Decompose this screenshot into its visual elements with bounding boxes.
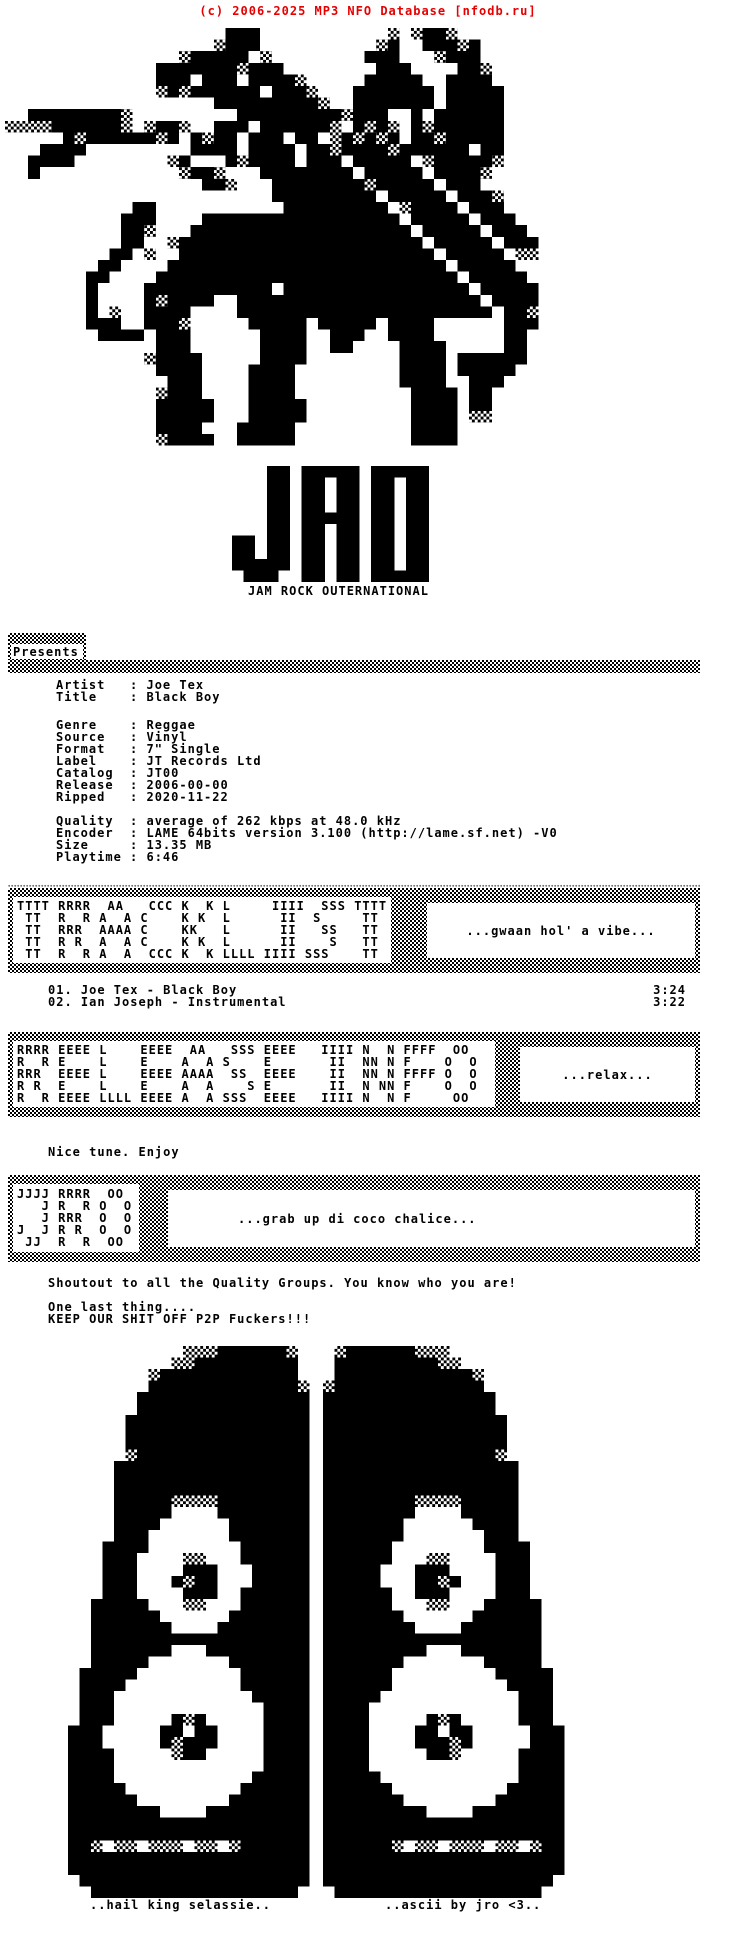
tracklist-ascii: TTTT RRRR AA CCC K K L IIII SSS TTTT TT …	[17, 900, 387, 960]
jro-ascii: JJJJ RRRR OO J R R O O J RRR O O J J R R…	[17, 1188, 132, 1248]
jro-banner: JJJJ RRRR OO J R R O O J RRR O O J J R R…	[8, 1175, 700, 1262]
shoutout-block: Shoutout to all the Quality Groups. You …	[48, 1277, 517, 1325]
jro-note: ...grab up di coco chalice...	[238, 1213, 477, 1225]
group-tagline: JAM ROCK OUTERNATIONAL	[248, 585, 429, 597]
presents-label: Presents	[13, 646, 79, 658]
artist-title-block: Artist : Joe Tex Title : Black Boy	[56, 679, 221, 703]
track-duration: 3:22	[653, 996, 686, 1008]
separator-band	[8, 660, 700, 673]
footer-caption-right: ..ascii by jro <3..	[385, 1899, 541, 1911]
footer-caption-left: ..hail king selassie..	[90, 1899, 271, 1911]
source-info-block: Genre : Reggae Source : Vinyl Format : 7…	[56, 719, 262, 803]
enjoy-message: Nice tune. Enjoy	[48, 1146, 180, 1158]
rasta-lion-art	[5, 28, 539, 446]
copyright-header: (c) 2006-2025 MP3 NFO Database [nfodb.ru…	[0, 5, 736, 17]
audio-info-block: Quality : average of 262 kbps at 48.0 kH…	[56, 815, 558, 863]
tracklist-note: ...gwaan hol' a vibe...	[466, 925, 655, 937]
tracklist-banner: TTTT RRRR AA CCC K K L IIII SSS TTTT TT …	[8, 888, 700, 973]
track-row: 02. Ian Joseph - Instrumental3:22	[48, 996, 686, 1008]
tracklist: 01. Joe Tex - Black Boy3:2402. Ian Josep…	[48, 984, 686, 1008]
presents-tab: Presents	[8, 633, 86, 660]
jro-logo-art	[232, 466, 429, 582]
track-title: 02. Ian Joseph - Instrumental	[48, 996, 287, 1008]
right-speaker-art	[323, 1346, 565, 1898]
nfo-page: (c) 2006-2025 MP3 NFO Database [nfodb.ru…	[0, 0, 736, 1956]
release-info-note: ...relax...	[562, 1069, 652, 1081]
release-info-banner: RRRR EEEE L EEEE AA SSS EEEE IIII N N FF…	[8, 1032, 700, 1117]
left-speaker-art	[68, 1346, 310, 1898]
release-info-ascii: RRRR EEEE L EEEE AA SSS EEEE IIII N N FF…	[17, 1044, 478, 1104]
